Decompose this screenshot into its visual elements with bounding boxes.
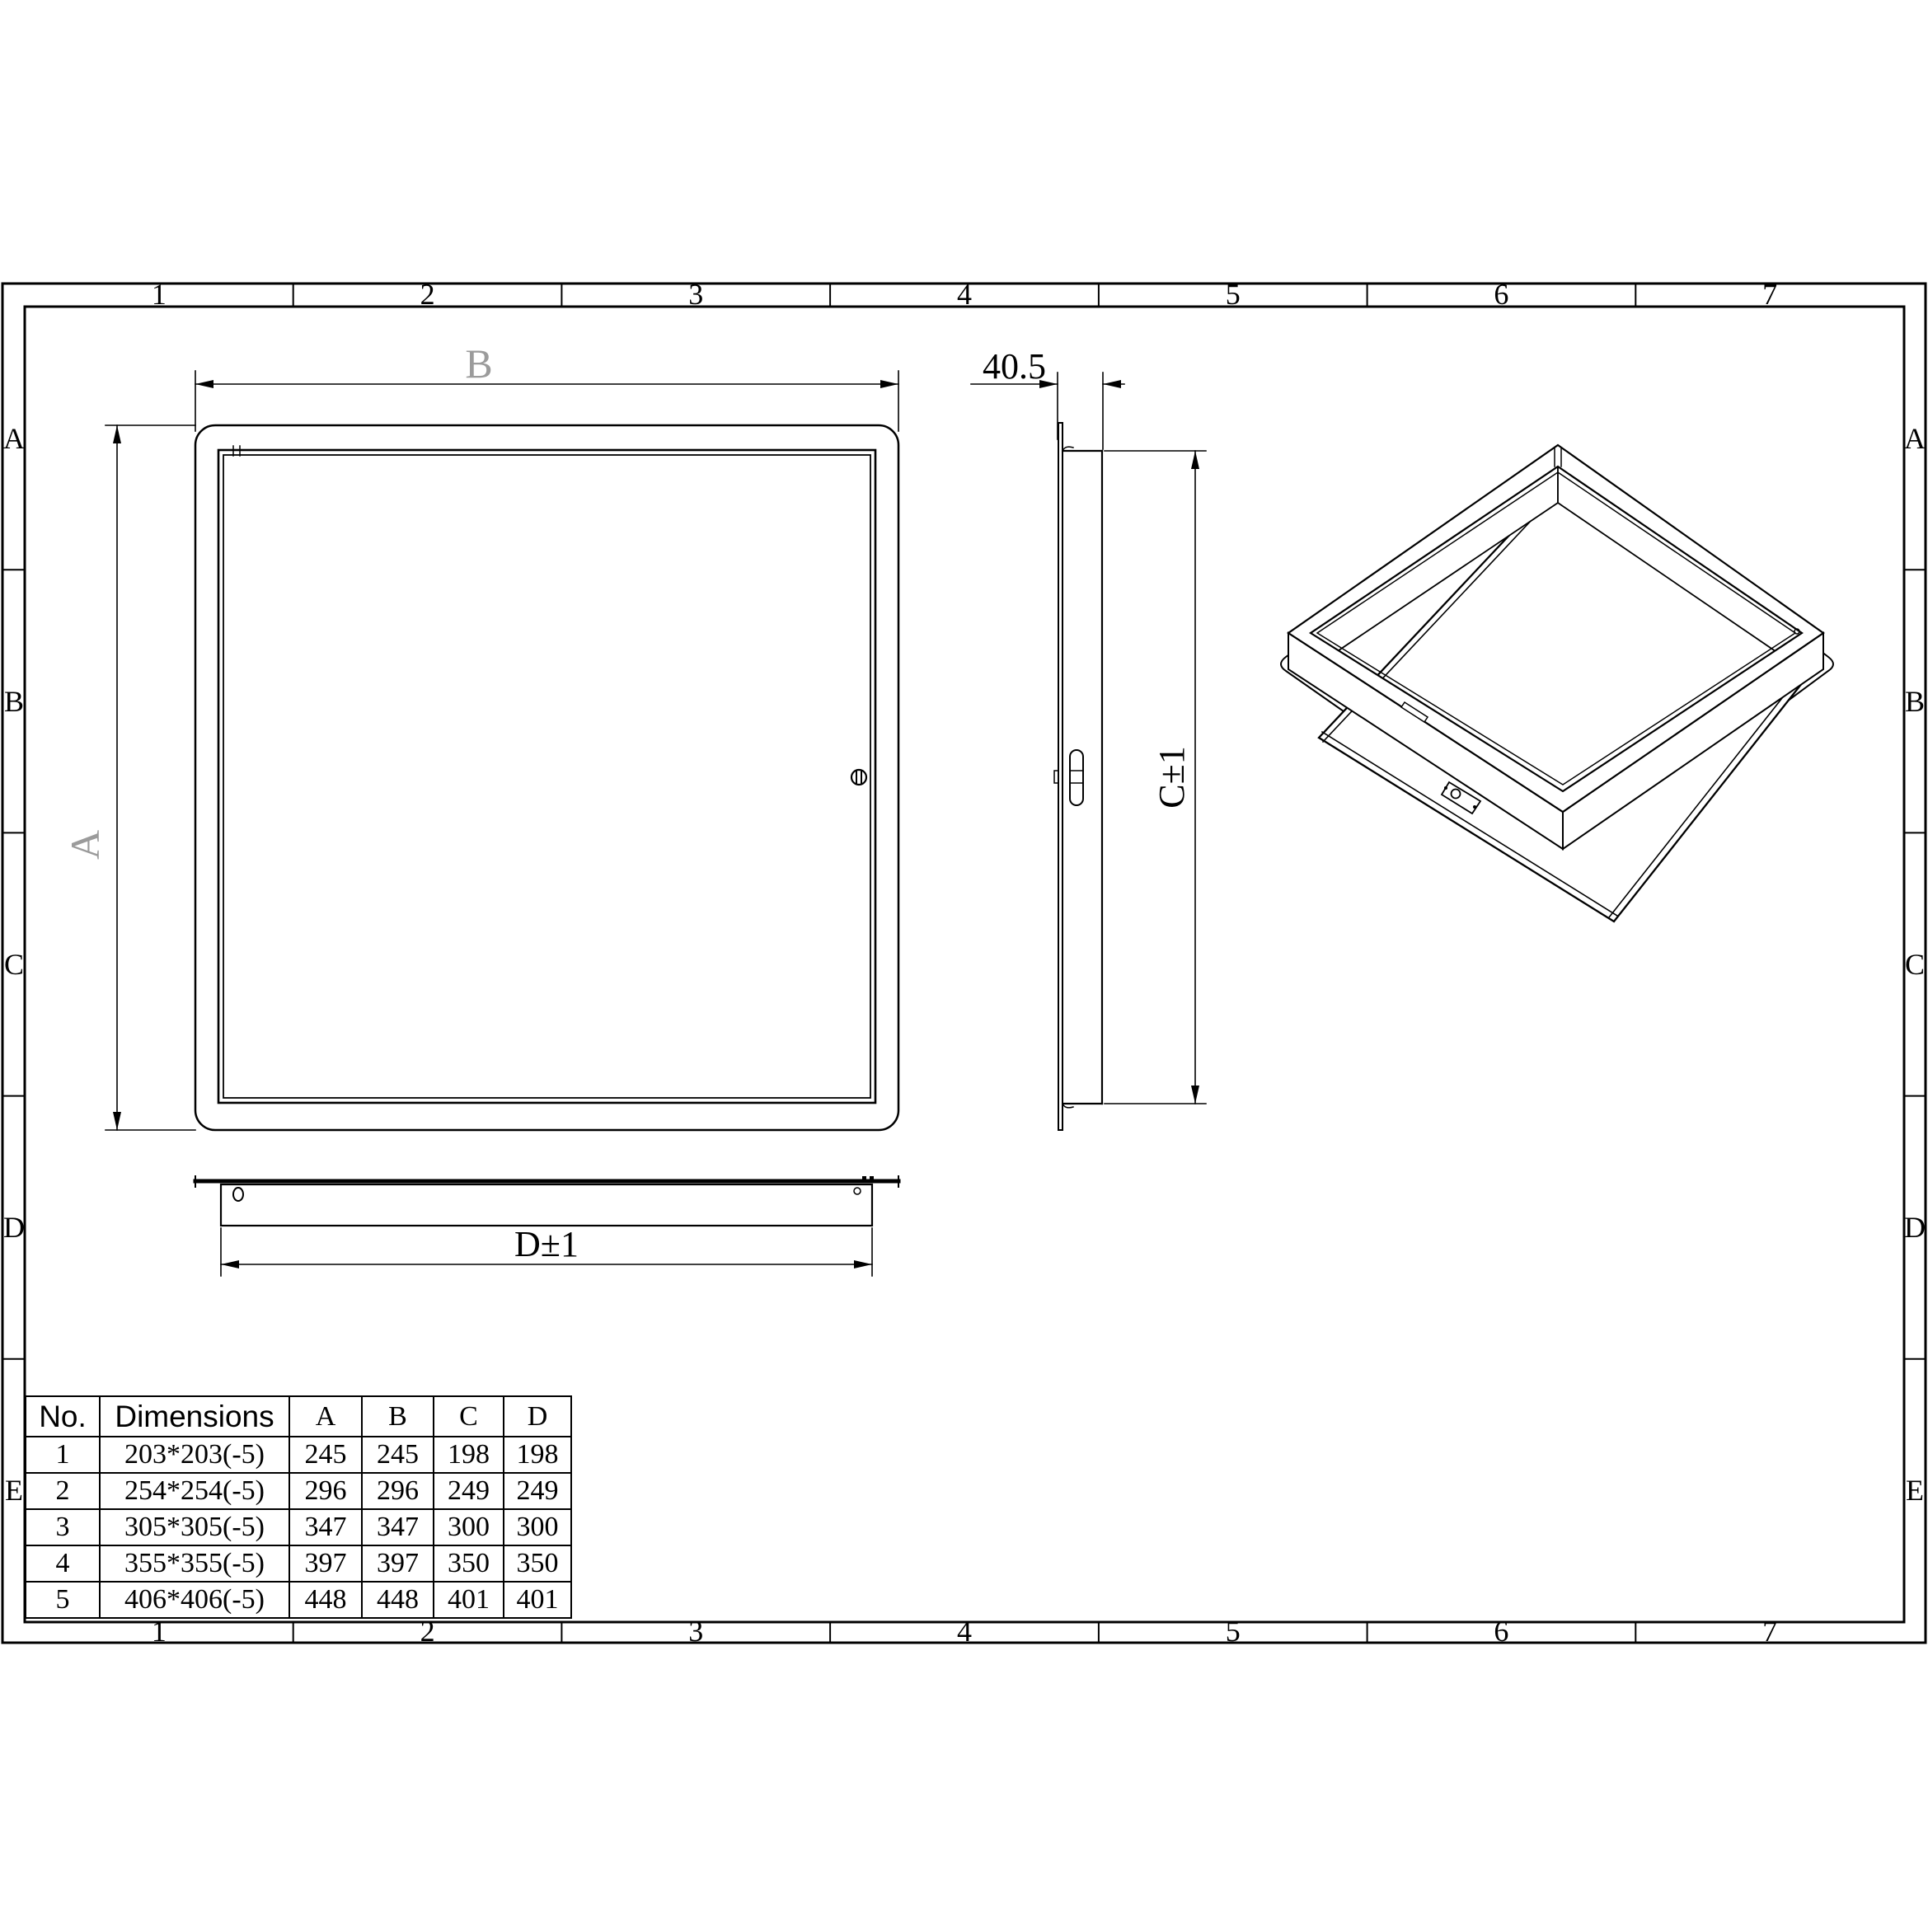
grid-row-label: A — [3, 422, 25, 455]
table-row: 1 203*203(-5) 245 245 198 198 — [26, 1437, 571, 1473]
grid-column-label: 7 — [1762, 278, 1777, 311]
cell-d: 249 — [504, 1473, 571, 1509]
grid-column-label: 2 — [420, 278, 435, 311]
col-header-d: D — [504, 1396, 571, 1437]
cell-no: 1 — [26, 1437, 100, 1473]
grid-row-label: C — [1905, 948, 1925, 981]
grid-row-label: A — [1904, 422, 1926, 455]
grid-column-label: 5 — [1226, 278, 1241, 311]
table-row: 2 254*254(-5) 296 296 249 249 — [26, 1473, 571, 1509]
cell-b: 397 — [362, 1545, 434, 1582]
bottom-width-label: D±1 — [514, 1224, 579, 1264]
cell-no: 2 — [26, 1473, 100, 1509]
cell-no: 3 — [26, 1509, 100, 1545]
grid-row-label: B — [1905, 685, 1925, 718]
spec-table: No. Dimensions A B C D 1 203*203(-5) 245… — [25, 1395, 572, 1619]
cell-dims: 406*406(-5) — [100, 1582, 289, 1618]
lock-icon — [851, 770, 866, 785]
grid-row-label: D — [1904, 1211, 1926, 1244]
cell-dims: 305*305(-5) — [100, 1509, 289, 1545]
cell-a: 448 — [289, 1582, 362, 1618]
depth-dimension: 40.5 — [971, 346, 1124, 449]
grid-column-label: 4 — [957, 1615, 972, 1648]
col-header-b: B — [362, 1396, 434, 1437]
col-header-dimensions: Dimensions — [100, 1396, 289, 1437]
front-width-label: B — [465, 340, 492, 387]
drawing-sheet: 1 2 3 4 5 6 7 1 2 3 4 5 6 7 A B C D E A … — [0, 0, 1928, 1928]
col-header-no: No. — [26, 1396, 100, 1437]
grid-row-label: B — [4, 685, 24, 718]
isometric-view — [1281, 445, 1833, 921]
bottom-width-dimension: D±1 — [221, 1224, 872, 1276]
cell-b: 448 — [362, 1582, 434, 1618]
grid-column-label: 1 — [152, 1615, 167, 1648]
col-header-c: C — [434, 1396, 504, 1437]
grid-column-label: 1 — [152, 278, 167, 311]
cell-d: 401 — [504, 1582, 571, 1618]
front-height-dimension: A — [62, 425, 195, 1130]
grid-column-label: 2 — [420, 1615, 435, 1648]
cell-dims: 254*254(-5) — [100, 1473, 289, 1509]
drawing-canvas: 1 2 3 4 5 6 7 1 2 3 4 5 6 7 A B C D E A … — [0, 0, 1928, 1928]
grid-column-label: 7 — [1762, 1615, 1777, 1648]
cell-c: 350 — [434, 1545, 504, 1582]
cell-c: 300 — [434, 1509, 504, 1545]
grid-row-label: E — [1906, 1474, 1924, 1507]
cell-no: 4 — [26, 1545, 100, 1582]
grid-column-label: 3 — [688, 1615, 703, 1648]
cell-dims: 203*203(-5) — [100, 1437, 289, 1473]
side-height-dimension: C±1 — [1105, 451, 1206, 1104]
grid-column-label: 5 — [1226, 1615, 1241, 1648]
spec-table-header-row: No. Dimensions A B C D — [26, 1396, 571, 1437]
cell-no: 5 — [26, 1582, 100, 1618]
cell-b: 347 — [362, 1509, 434, 1545]
cell-a: 397 — [289, 1545, 362, 1582]
table-row: 3 305*305(-5) 347 347 300 300 — [26, 1509, 571, 1545]
bottom-view — [195, 1176, 898, 1226]
cell-c: 249 — [434, 1473, 504, 1509]
cell-dims: 355*355(-5) — [100, 1545, 289, 1582]
cell-b: 245 — [362, 1437, 434, 1473]
cell-a: 245 — [289, 1437, 362, 1473]
side-view — [1054, 423, 1102, 1130]
front-width-dimension: B — [195, 340, 898, 431]
grid-row-label: E — [5, 1474, 23, 1507]
side-height-label: C±1 — [1152, 746, 1192, 809]
grid-row-label: C — [4, 948, 24, 981]
grid-column-label: 6 — [1494, 1615, 1508, 1648]
depth-dimension-label: 40.5 — [983, 346, 1046, 387]
cell-d: 350 — [504, 1545, 571, 1582]
cell-b: 296 — [362, 1473, 434, 1509]
cell-a: 296 — [289, 1473, 362, 1509]
front-height-label: A — [62, 830, 108, 860]
grid-column-label: 6 — [1494, 278, 1508, 311]
table-row: 4 355*355(-5) 397 397 350 350 — [26, 1545, 571, 1582]
cell-d: 300 — [504, 1509, 571, 1545]
cell-c: 198 — [434, 1437, 504, 1473]
grid-column-label: 3 — [688, 278, 703, 311]
cell-c: 401 — [434, 1582, 504, 1618]
grid-row-label: D — [3, 1211, 25, 1244]
grid-column-label: 4 — [957, 278, 972, 311]
cell-a: 347 — [289, 1509, 362, 1545]
table-row: 5 406*406(-5) 448 448 401 401 — [26, 1582, 571, 1618]
col-header-a: A — [289, 1396, 362, 1437]
front-view — [195, 425, 898, 1130]
cell-d: 198 — [504, 1437, 571, 1473]
